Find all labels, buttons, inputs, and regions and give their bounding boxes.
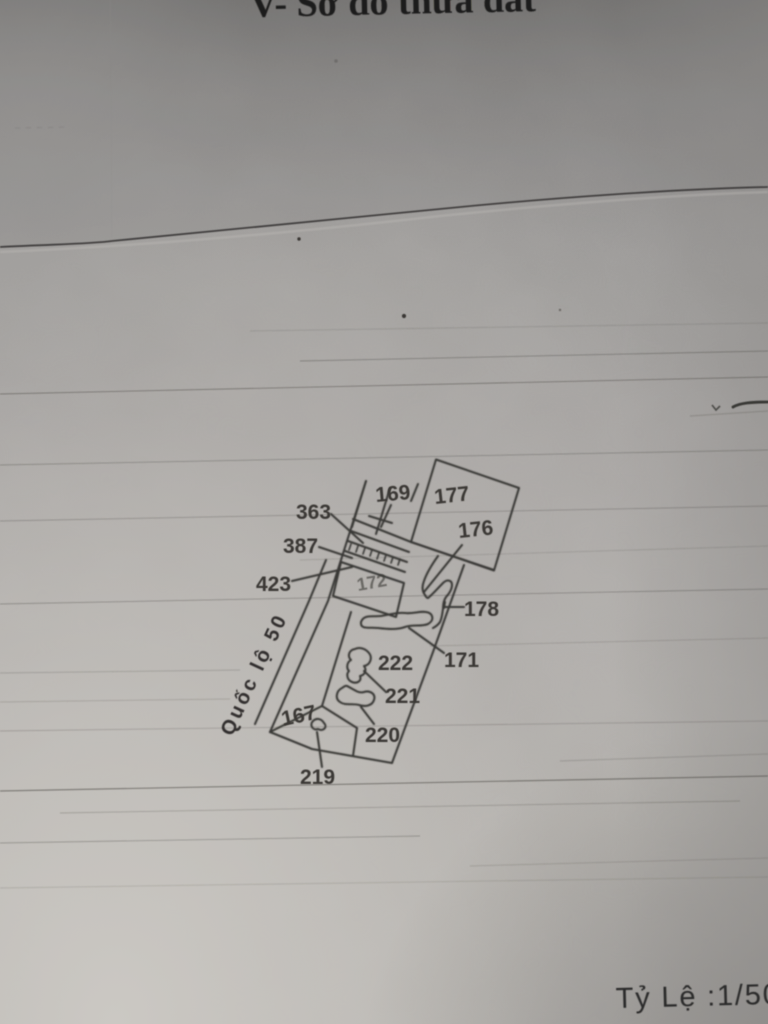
svg-text:221: 221 [385,685,420,708]
svg-text:178: 178 [464,598,499,621]
svg-text:387: 387 [283,535,318,558]
svg-text:220: 220 [365,724,400,747]
svg-text:176: 176 [457,516,494,543]
svg-text:171: 171 [444,649,479,672]
svg-text:Tỷ Lệ :1/50: Tỷ Lệ :1/50 [615,979,768,1015]
svg-text:222: 222 [378,652,413,675]
svg-text:169: 169 [374,481,411,507]
svg-text:219: 219 [300,766,335,789]
svg-text:177: 177 [433,482,470,509]
svg-text:363: 363 [296,501,331,524]
svg-text:423: 423 [256,573,291,596]
